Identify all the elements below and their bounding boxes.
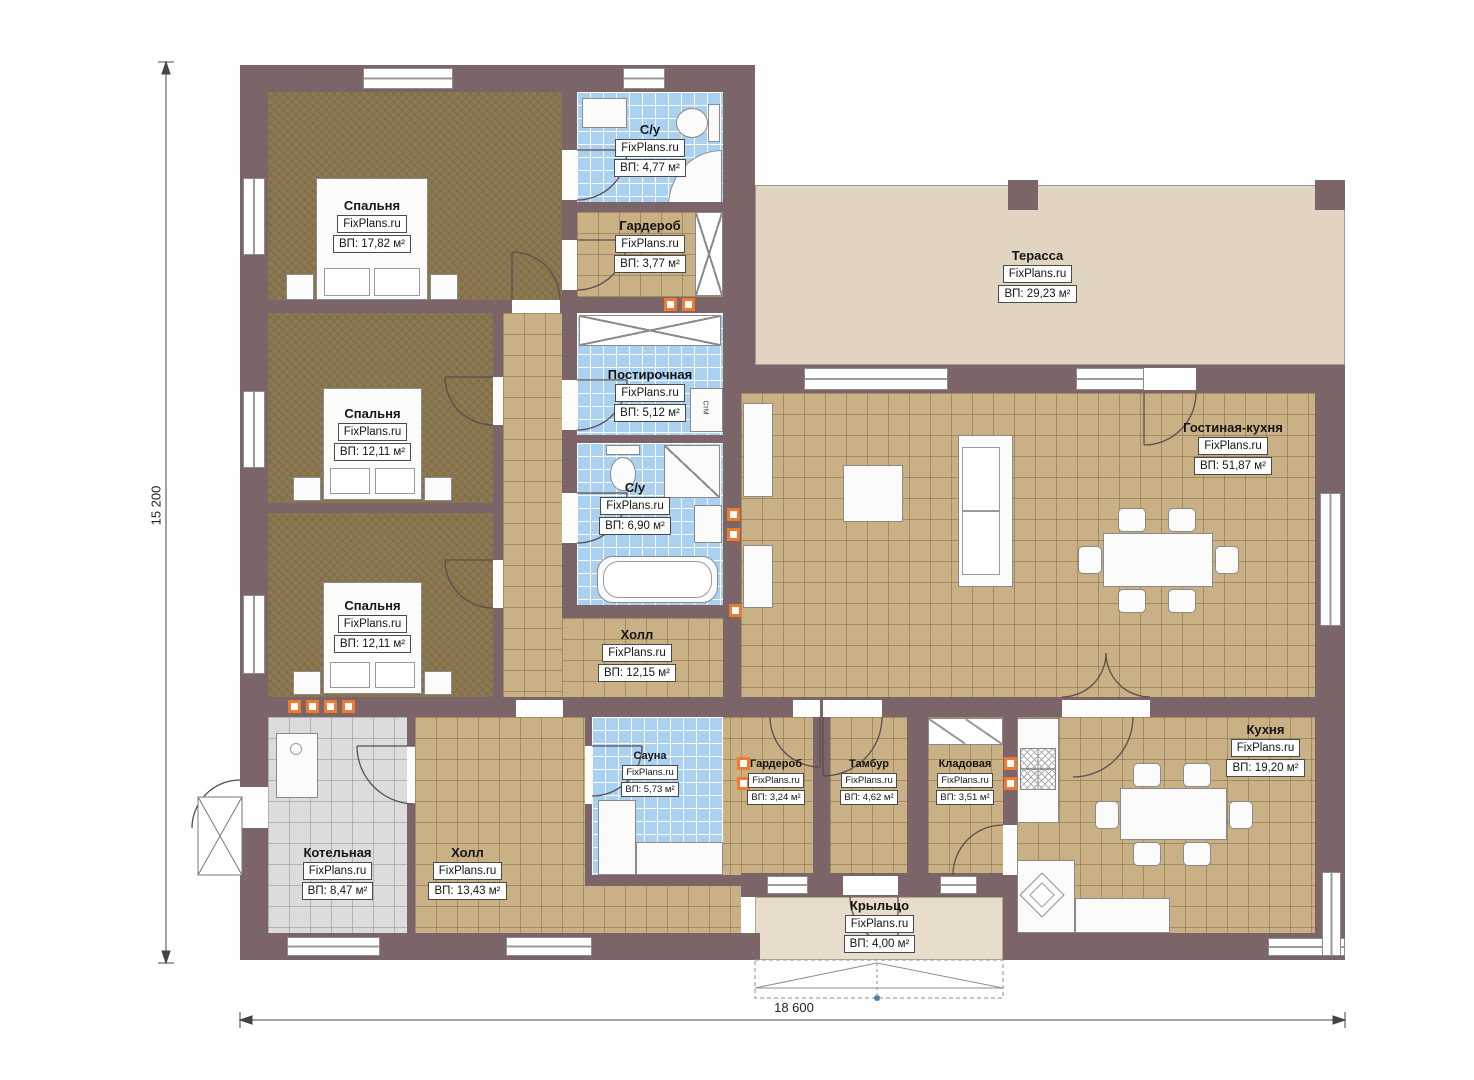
room-name: Постирочная [608,367,692,382]
window [1076,368,1144,390]
vent-marker [727,508,740,521]
door-opening-bedroom1 [512,300,560,313]
window [1320,493,1341,626]
room-name: Гардероб [619,218,680,233]
wall-bathroom1-south [577,202,723,212]
terrace-pillar-2 [1315,180,1345,210]
door-opening-laundry [562,380,577,430]
watermark: FixPlans.ru [841,773,897,788]
window [287,937,380,956]
bathtub-basin [603,561,712,598]
door-opening-boiler [407,746,415,804]
chair [1215,546,1239,574]
stove-symbol [1020,748,1056,790]
vent-marker [288,700,301,713]
boiler-gauge [290,743,302,755]
room-name: Сауна [633,750,666,763]
door-opening-terrace [1144,368,1196,390]
door-opening-tambour [823,700,882,717]
window [243,595,265,674]
room-area: ВП: 8,47 м² [302,882,374,900]
toilet-tank [606,445,640,455]
kitchen-counter-bottom [1075,898,1170,933]
sauna-bench [598,800,636,875]
wall-laundry-south [577,435,723,443]
watermark: FixPlans.ru [600,497,670,515]
room-name: Холл [621,627,654,642]
window [506,937,592,956]
passage-halls [516,700,563,717]
chair [1168,508,1196,532]
door-opening-bathroom1 [562,150,577,200]
door-opening-porch [843,876,898,895]
watermark: FixPlans.ru [937,773,993,788]
window [767,876,808,894]
wall-right-main [1315,365,1345,960]
room-name: Кухня [1247,722,1285,737]
window [623,68,665,89]
watermark: FixPlans.ru [1003,265,1073,283]
room-area: ВП: 12,11 м² [334,443,411,461]
room-name: Крыльцо [850,898,909,913]
room-name: С/у [640,122,660,137]
coffee-table [843,465,903,522]
room-area: ВП: 4,77 м² [614,159,686,177]
sideboard [743,403,773,497]
room-area: ВП: 29,23 м² [998,285,1076,303]
sofa-seat [962,511,1000,575]
room-label-hall2: Холл FixPlans.ru ВП: 13,43 м² [395,845,540,900]
window [940,876,977,894]
room-floor-corridor [503,313,562,697]
wall-bathroom2-south [577,605,723,618]
terrace-pillar-1 [1008,180,1038,210]
room-area: ВП: 3,77 м² [614,255,686,273]
door-opening-entrance-boiler [240,787,268,828]
chair [1168,589,1196,613]
room-area: ВП: 12,15 м² [598,664,676,682]
room-area: ВП: 3,51 м² [936,790,993,805]
vent-marker [664,298,677,311]
room-area: ВП: 12,11 м² [334,635,411,653]
storage-shelving [928,718,1003,745]
room-name: Тамбур [849,758,889,771]
door-opening-sauna [585,746,592,804]
room-label-bedroom2: Спальня FixPlans.ru ВП: 12,11 м² [315,406,430,461]
wall-bedroom2-3 [268,503,503,513]
room-label-wardrobe2: Гардероб FixPlans.ru ВП: 3,24 м² [736,758,816,805]
nightstand [430,274,458,300]
vent-marker [727,528,740,541]
watermark: FixPlans.ru [338,423,408,441]
room-name: Гостиная-кухня [1183,420,1283,435]
nightstand [293,671,321,695]
chair [1078,546,1102,574]
vent-marker [306,700,319,713]
vent-marker [729,604,742,617]
door-opening-storage [1003,825,1017,875]
room-area: ВП: 17,82 м² [333,235,411,253]
watermark: FixPlans.ru [622,765,678,780]
pillow [330,662,370,688]
room-label-wardrobe1: Гардероб FixPlans.ru ВП: 3,77 м² [582,218,718,273]
nightstand [424,671,452,695]
wall-sauna-south [585,875,741,886]
room-name: С/у [625,480,645,495]
room-name: Спальня [344,198,400,213]
room-name: Холл [451,845,484,860]
room-label-tambour: Тамбур FixPlans.ru ВП: 4,62 м² [829,758,909,805]
entrance-door-leaf [198,797,242,875]
corner-window-right [1322,872,1341,956]
room-name: Гардероб [750,758,802,771]
wall-top [240,65,755,92]
floor-plan: СтМ [0,0,1474,1080]
nightstand [286,274,314,300]
window [243,178,265,255]
room-name: Кладовая [939,758,992,771]
room-area: ВП: 51,87 м² [1194,457,1272,475]
room-label-living: Гостиная-кухня FixPlans.ru ВП: 51,87 м² [1148,420,1318,475]
room-label-laundry: Постирочная FixPlans.ru ВП: 5,12 м² [582,367,718,422]
room-label-porch: Крыльцо FixPlans.ru ВП: 4,00 м² [822,898,937,953]
room-label-bathroom2: С/у FixPlans.ru ВП: 6,90 м² [570,480,700,535]
wall-right-top [723,92,755,365]
room-area: ВП: 5,73 м² [621,782,678,797]
door-opening-wardrobe1 [562,240,577,290]
room-label-terrace: Терасса FixPlans.ru ВП: 29,23 м² [955,248,1120,303]
dimension-label-bottom: 18 600 [752,1000,836,1015]
watermark: FixPlans.ru [615,139,685,157]
room-label-kitchen: Кухня FixPlans.ru ВП: 19,20 м² [1198,722,1333,777]
window [804,368,948,390]
room-area: ВП: 5,12 м² [614,404,686,422]
door-opening-wardrobe2 [793,700,820,717]
chair [1133,763,1161,787]
dimension-label-left: 15 200 [149,468,164,544]
vent-marker [342,700,355,713]
pillow [374,268,420,296]
porch-steps [755,960,1003,1001]
wall-wardrobe1-south [577,297,723,313]
nightstand [424,477,452,501]
room-label-bedroom3: Спальня FixPlans.ru ВП: 12,11 м² [315,598,430,653]
door-opening-bedroom2 [493,377,503,425]
dining-table [1103,533,1213,587]
watermark: FixPlans.ru [433,862,503,880]
room-area: ВП: 4,00 м² [844,935,916,953]
room-label-sauna: Сауна FixPlans.ru ВП: 5,73 м² [595,750,705,797]
room-label-bedroom1: Спальня FixPlans.ru ВП: 17,82 м² [312,198,432,253]
laundry-shelving [579,315,721,346]
room-label-hall1: Холл FixPlans.ru ВП: 12,15 м² [572,627,702,682]
sauna-bench [636,842,723,875]
sideboard [743,545,773,608]
watermark: FixPlans.ru [1198,437,1268,455]
window [243,391,265,468]
watermark: FixPlans.ru [615,235,685,253]
watermark: FixPlans.ru [615,384,685,402]
chair [1183,842,1211,866]
wall-bedrooms-east [493,313,503,697]
chair [1133,842,1161,866]
room-name: Спальня [344,598,400,613]
watermark: FixPlans.ru [337,215,407,233]
room-area: ВП: 3,24 м² [747,790,804,805]
vent-marker [682,298,695,311]
pillow [375,468,415,494]
chair [1095,801,1119,829]
room-area: ВП: 13,43 м² [428,882,506,900]
door-opening-bedroom3 [493,560,503,608]
window [363,68,453,89]
room-name: Спальня [344,406,400,421]
kitchen-table [1120,788,1227,840]
watermark: FixPlans.ru [338,615,408,633]
room-label-boiler: Котельная FixPlans.ru ВП: 8,47 м² [265,845,410,900]
room-label-storage: Кладовая FixPlans.ru ВП: 3,51 м² [924,758,1006,805]
pillow [330,468,370,494]
room-label-bathroom1: С/у FixPlans.ru ВП: 4,77 м² [582,122,718,177]
room-area: ВП: 6,90 м² [599,517,671,535]
nightstand [293,477,321,501]
room-name: Терасса [1012,248,1064,263]
watermark: FixPlans.ru [845,915,915,933]
chair [1118,589,1146,613]
watermark: FixPlans.ru [602,644,672,662]
room-area: ВП: 4,62 м² [840,790,897,805]
watermark: FixPlans.ru [748,773,804,788]
passage-kitchen [1062,700,1150,717]
vent-marker [324,700,337,713]
room-name: Котельная [303,845,371,860]
sofa-seat [962,447,1000,511]
room-area: ВП: 19,20 м² [1226,759,1304,777]
watermark: FixPlans.ru [303,862,373,880]
chair [1118,508,1146,532]
pillow [375,662,415,688]
watermark: FixPlans.ru [1231,739,1301,757]
pillow [324,268,370,296]
chair [1229,801,1253,829]
